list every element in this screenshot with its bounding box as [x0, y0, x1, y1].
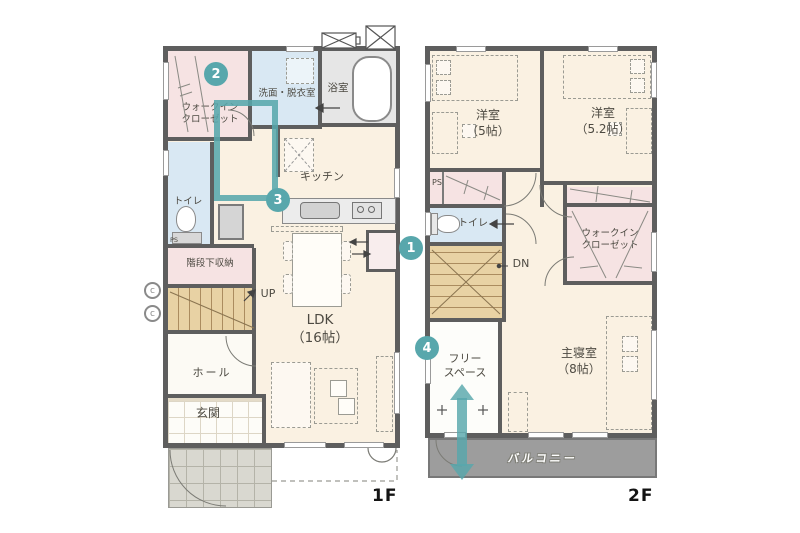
burner-icon [368, 206, 375, 213]
toilet-tank [431, 213, 438, 235]
wall [544, 181, 657, 185]
wall [430, 168, 540, 172]
pillow [630, 78, 645, 93]
wall [563, 281, 657, 285]
wall [168, 394, 266, 398]
floor1-stairs [168, 288, 256, 332]
pillow [622, 336, 638, 352]
annotation-badge-1: 1 [399, 236, 423, 260]
highlight-area [214, 100, 278, 201]
label-toilet-1f: トイレ [164, 196, 212, 208]
dining-table [292, 233, 342, 307]
window [163, 150, 169, 176]
tv-board [376, 356, 393, 432]
window [651, 62, 657, 98]
annotation-badge-2: 2 [204, 62, 228, 86]
kitchen-sink [300, 202, 340, 219]
floor1-hall [168, 334, 256, 396]
entrance-porch [168, 448, 272, 508]
floor1-pantry [366, 230, 396, 272]
label-bedroom2: 洋室 （5.2帖） [556, 106, 650, 137]
label-toilet-2f: トイレ [448, 217, 498, 230]
pillow [630, 59, 645, 74]
label-kitchen: キッチン [288, 170, 356, 184]
window [286, 46, 314, 52]
badge-number: 3 [273, 193, 282, 208]
storage-cabinet [218, 204, 244, 240]
meter-box: c [144, 305, 161, 322]
label-washroom: 洗面・脱衣室 [244, 88, 330, 100]
annotation-badge-3: 3 [266, 188, 290, 212]
balcony-door [528, 432, 564, 438]
meter-label: c [150, 309, 155, 319]
balcony-door [572, 432, 608, 438]
window [651, 330, 657, 400]
back-door-opening [394, 168, 400, 198]
window [394, 352, 400, 414]
badge-number: 1 [406, 241, 415, 256]
counter-overhang [271, 226, 343, 232]
wall [430, 318, 506, 322]
label-balcony: バルコニー [506, 450, 578, 466]
wall [252, 248, 256, 398]
pillow [622, 356, 638, 372]
label-free-space: フリー スペース [428, 352, 502, 381]
label-ps-2f: PS [429, 178, 445, 188]
dining-chair [341, 241, 351, 261]
dresser [508, 392, 528, 432]
label-bath: 浴室 [324, 82, 352, 96]
wall [168, 244, 254, 248]
entry-step-arc [368, 448, 396, 462]
pillow [436, 80, 451, 95]
wall [502, 172, 506, 322]
floor-cushion [330, 380, 347, 397]
label-under-stair-storage: 階段下収納 [170, 258, 250, 270]
burner-icon [357, 206, 364, 213]
balcony-door [444, 432, 466, 438]
dining-chair [283, 241, 293, 261]
floor1-label: 1F [372, 486, 397, 506]
wall [322, 123, 396, 127]
label-master-bedroom: 主寝室 （8帖） [538, 346, 620, 377]
label-ps-1f: PS [168, 236, 180, 244]
toilet-bowl-icon [176, 206, 196, 232]
label-hall: ホール [176, 366, 248, 380]
window [284, 442, 326, 448]
floor2-balcony: バルコニー [428, 438, 657, 478]
badge-number: 2 [211, 67, 220, 82]
sofa [271, 362, 311, 428]
wall [168, 330, 256, 334]
wall [567, 203, 657, 207]
dining-chair [283, 274, 293, 294]
label-down: DN [506, 257, 536, 271]
floor2-bedroom2-closet [567, 187, 652, 203]
plan-symbol-overlay [0, 0, 800, 533]
label-ldk: LDK （16帖） [286, 312, 354, 347]
dining-chair [341, 274, 351, 294]
window [425, 212, 431, 236]
window [344, 442, 384, 448]
wall [430, 204, 506, 208]
floor2-label: 2F [628, 486, 653, 506]
window [425, 64, 431, 102]
floor-cushion [338, 398, 355, 415]
floor2-stairs [430, 246, 502, 318]
annotation-badge-4: 4 [415, 336, 439, 360]
wall [262, 398, 266, 448]
bathtub [352, 56, 392, 122]
window [588, 46, 618, 52]
washbasin [286, 58, 314, 84]
label-walk-in-closet-2f: ウォークイン クローゼット [562, 228, 658, 253]
meter-box: c [144, 282, 161, 299]
meter-label: c [150, 286, 155, 296]
floor-plan: c c ウォークイン クローゼット 洗面・脱衣室 浴室 キッチン トイレ PS … [0, 0, 800, 533]
eaves-outline [272, 450, 397, 481]
wall [430, 242, 506, 246]
window [456, 46, 486, 52]
wall [168, 284, 254, 288]
window [163, 62, 169, 100]
refrigerator-space [284, 138, 314, 172]
label-entrance: 玄関 [178, 406, 238, 422]
label-bedroom1: 洋室 （5帖） [452, 108, 524, 139]
label-up: UP [254, 287, 282, 301]
badge-number: 4 [422, 341, 431, 356]
pillow [436, 60, 451, 75]
